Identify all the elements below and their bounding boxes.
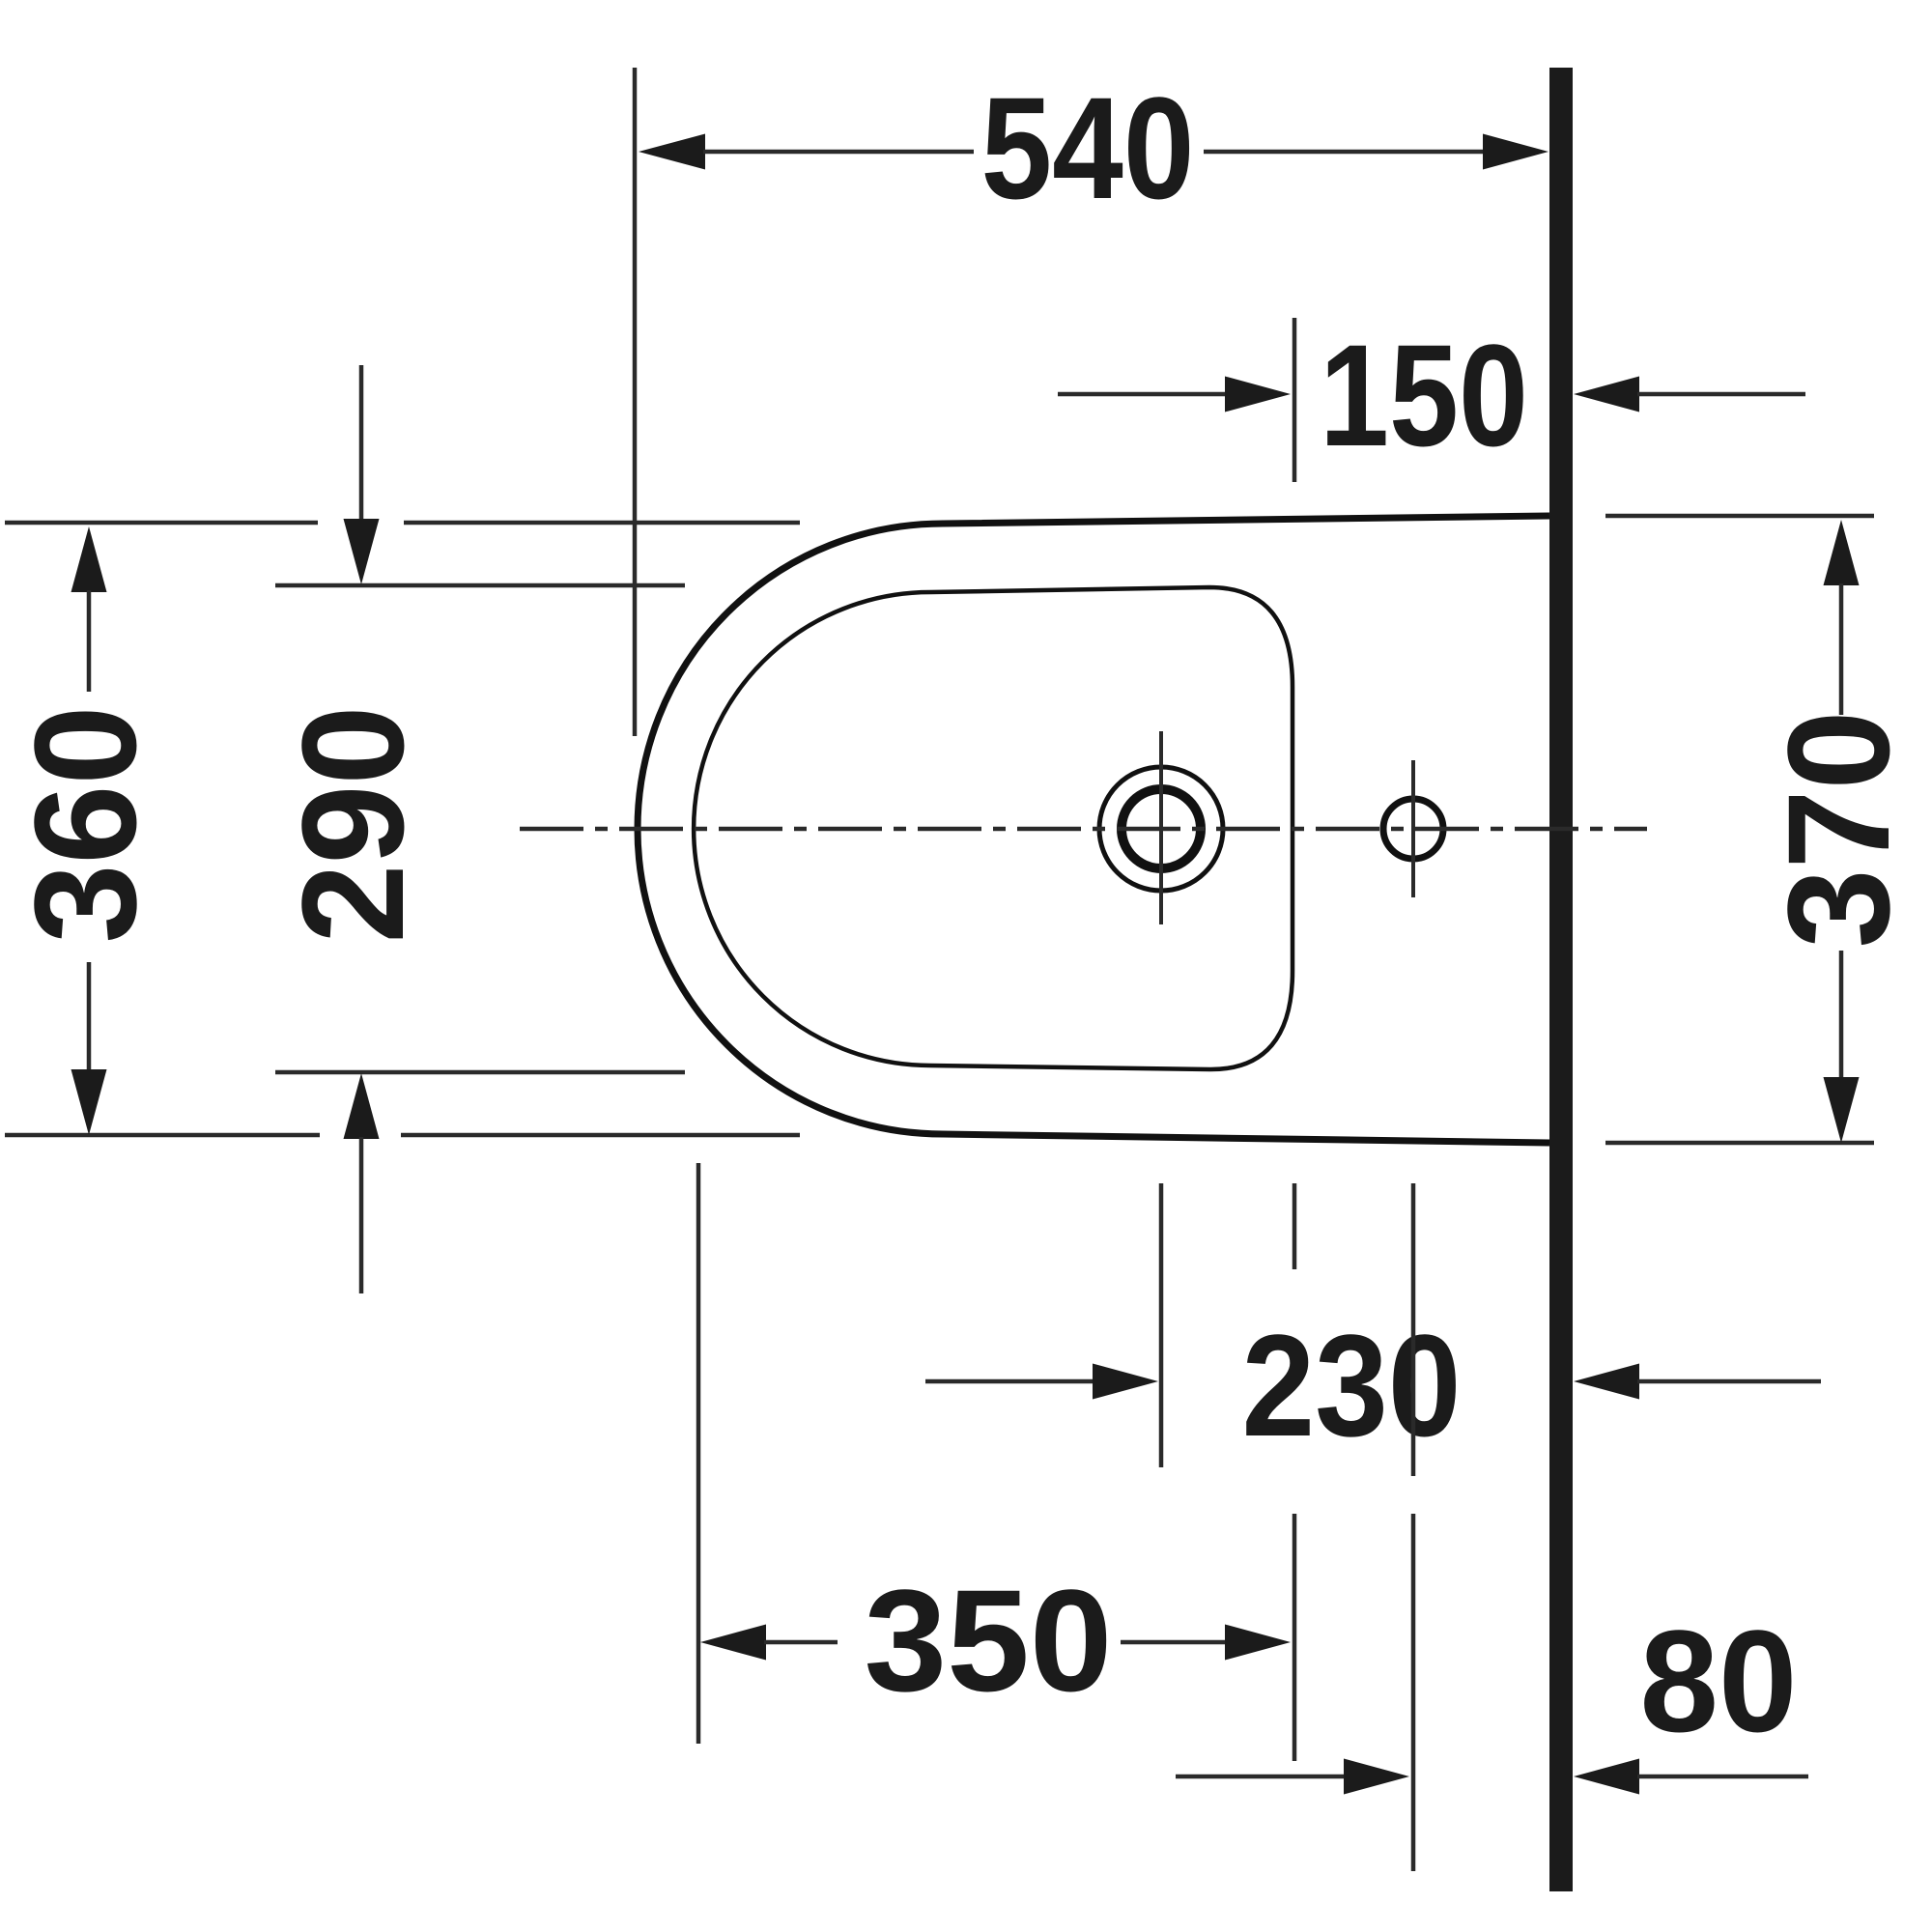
svg-text:290: 290 (271, 706, 434, 944)
svg-text:350: 350 (865, 1559, 1113, 1721)
svg-text:540: 540 (981, 67, 1195, 229)
svg-text:230: 230 (1242, 1304, 1462, 1466)
svg-text:150: 150 (1320, 314, 1528, 476)
svg-text:370: 370 (1757, 711, 1919, 949)
svg-text:360: 360 (4, 706, 166, 944)
svg-text:80: 80 (1640, 1600, 1798, 1762)
